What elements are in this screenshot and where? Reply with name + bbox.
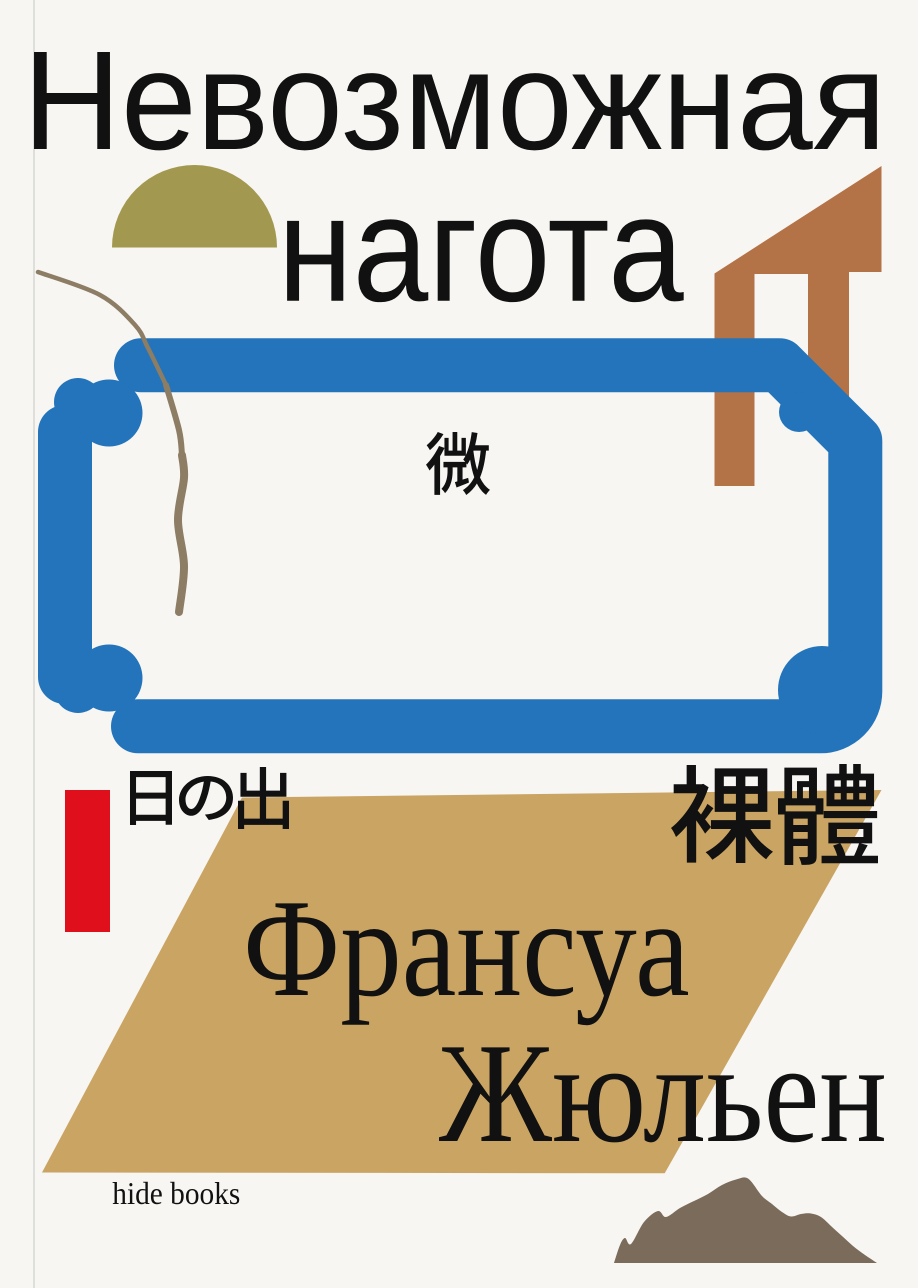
svg-text:нагота: нагота: [278, 164, 684, 333]
svg-text:Франсуа: Франсуа: [243, 871, 690, 1026]
svg-text:Жюльен: Жюльен: [439, 1014, 887, 1172]
svg-text:Невозможная: Невозможная: [23, 21, 886, 179]
svg-text:hide books: hide books: [112, 1175, 240, 1211]
